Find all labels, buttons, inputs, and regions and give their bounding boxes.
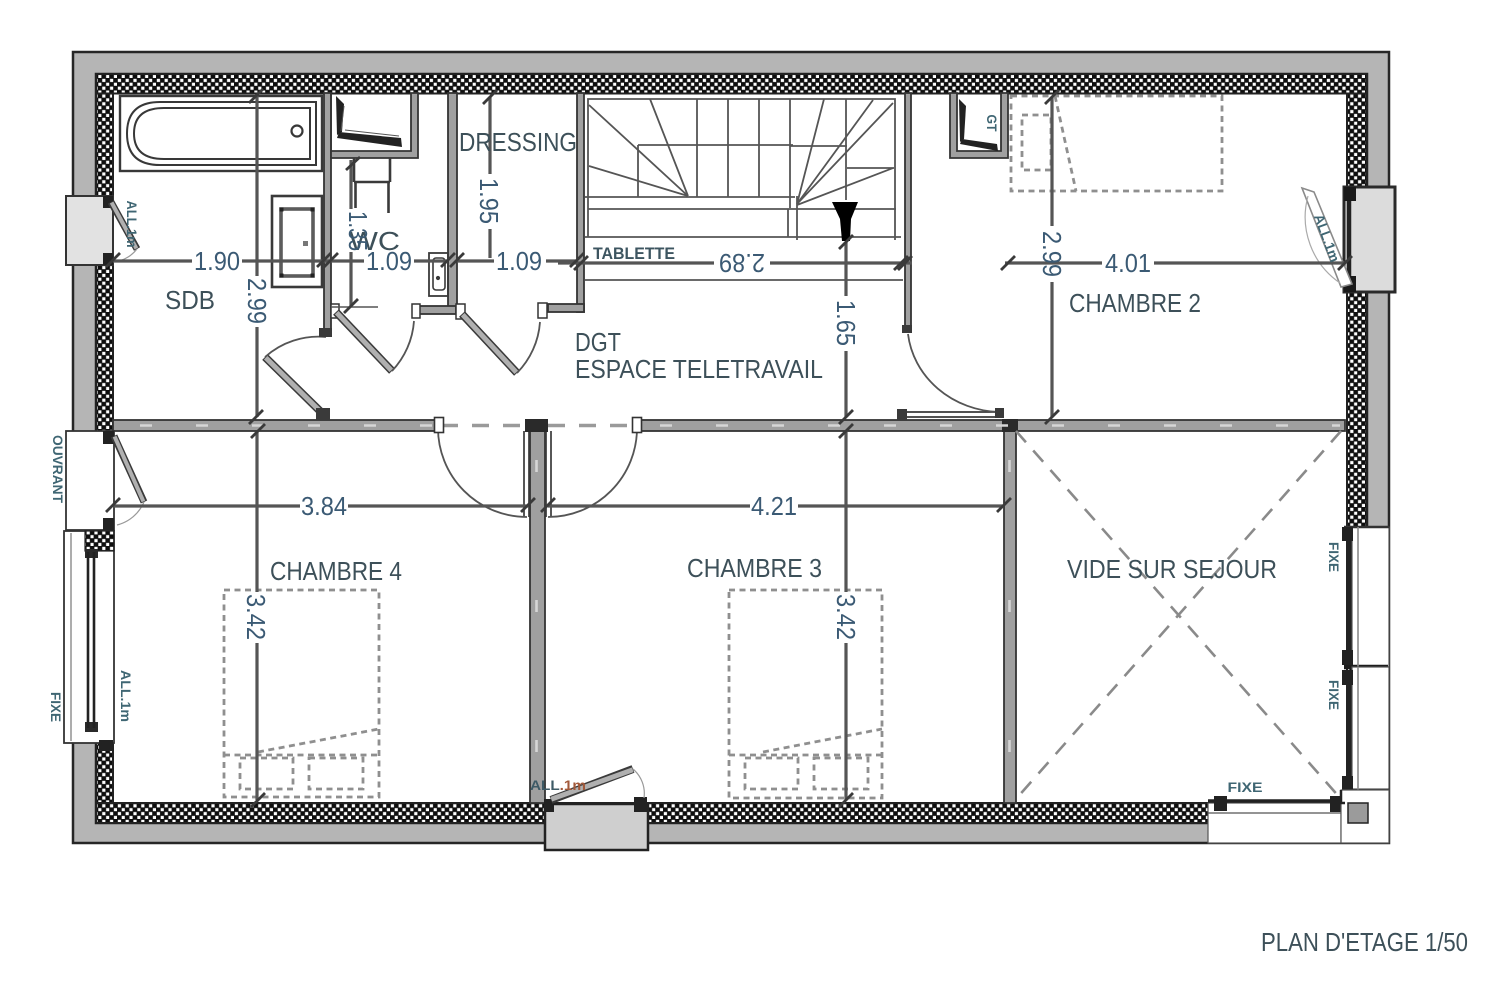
svg-text:SDB: SDB: [165, 285, 215, 315]
svg-text:4.21: 4.21: [751, 491, 797, 521]
svg-text:DGT: DGT: [575, 327, 621, 357]
svg-text:2.99: 2.99: [242, 278, 272, 324]
svg-text:ESPACE TELETRAVAIL: ESPACE TELETRAVAIL: [575, 354, 823, 384]
svg-text:2.89: 2.89: [719, 248, 765, 278]
svg-text:ALL.1m: ALL.1m: [124, 201, 140, 248]
svg-text:2.99: 2.99: [1037, 231, 1067, 277]
svg-text:FIXE: FIXE: [48, 692, 64, 722]
svg-text:VIDE SUR SEJOUR: VIDE SUR SEJOUR: [1067, 554, 1277, 584]
svg-text:FIXE: FIXE: [1326, 542, 1342, 572]
svg-text:3.42: 3.42: [831, 594, 861, 640]
svg-text:1.65: 1.65: [831, 300, 861, 346]
svg-text:CHAMBRE 2: CHAMBRE 2: [1069, 288, 1201, 318]
svg-text:PLAN D'ETAGE 1/50: PLAN D'ETAGE 1/50: [1261, 927, 1468, 957]
svg-text:ALL.1m: ALL.1m: [118, 670, 134, 722]
svg-text:1.90: 1.90: [194, 246, 240, 276]
svg-text:1.95: 1.95: [474, 178, 504, 224]
svg-text:CHAMBRE 4: CHAMBRE 4: [270, 556, 402, 586]
svg-text:FIXE: FIXE: [1228, 779, 1263, 795]
svg-text:4.01: 4.01: [1105, 248, 1151, 278]
svg-text:FIXE: FIXE: [1326, 680, 1342, 710]
svg-text:GT: GT: [984, 115, 1000, 132]
svg-text:TABLETTE: TABLETTE: [593, 244, 675, 263]
svg-text:ALL.1m: ALL.1m: [530, 777, 586, 793]
svg-text:DRESSING: DRESSING: [459, 127, 577, 157]
svg-text:1.35: 1.35: [343, 211, 373, 251]
svg-text:3.84: 3.84: [301, 491, 347, 521]
svg-text:1.09: 1.09: [496, 246, 542, 276]
svg-text:CHAMBRE 3: CHAMBRE 3: [687, 553, 822, 583]
svg-text:OUVRANT: OUVRANT: [50, 435, 66, 503]
svg-text:3.42: 3.42: [241, 594, 271, 640]
